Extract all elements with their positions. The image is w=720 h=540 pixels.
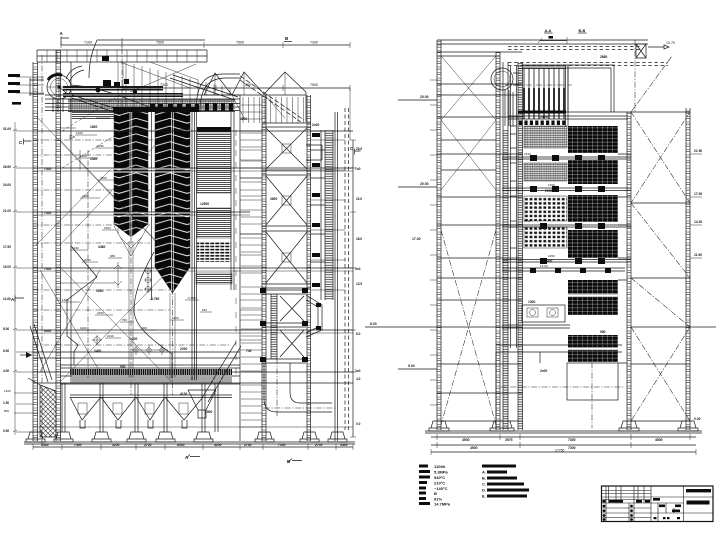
svg-text:7300: 7300: [160, 83, 168, 87]
svg-text:B: B: [434, 491, 437, 496]
svg-text:0.0: 0.0: [356, 422, 361, 426]
svg-text:17.00: 17.00: [694, 192, 702, 196]
svg-text:540°C: 540°C: [434, 475, 445, 480]
svg-text:2150: 2150: [524, 152, 531, 156]
svg-text:6300: 6300: [177, 443, 185, 447]
svg-text:17750: 17750: [555, 449, 565, 453]
svg-text:11.50: 11.50: [694, 253, 702, 257]
svg-text:1.50: 1.50: [3, 401, 9, 405]
svg-text:1200: 1200: [76, 131, 83, 135]
svg-text:28.0: 28.0: [356, 147, 362, 151]
svg-text:8.0: 8.0: [356, 332, 361, 336]
svg-text:5.3MPa: 5.3MPa: [434, 470, 449, 475]
svg-text:3x0: 3x0: [355, 369, 361, 373]
svg-text:1400: 1400: [545, 259, 553, 263]
svg-text:1500: 1500: [104, 226, 111, 230]
svg-text:A-A: A-A: [545, 29, 552, 33]
svg-text:1480: 1480: [62, 298, 69, 302]
svg-text:1250: 1250: [548, 254, 555, 258]
svg-text:5.00: 5.00: [408, 364, 415, 368]
svg-text:D.: D.: [482, 488, 486, 493]
svg-text:2x00: 2x00: [540, 369, 548, 373]
svg-text:17.00: 17.00: [412, 237, 421, 241]
svg-text:B-B: B-B: [579, 29, 586, 33]
svg-text:20.00: 20.00: [420, 95, 429, 99]
svg-text:24.00: 24.00: [3, 183, 11, 187]
svg-text:2130: 2130: [575, 225, 583, 229]
svg-text:-3.780: -3.780: [187, 296, 196, 300]
svg-text:210°C: 210°C: [434, 481, 445, 486]
svg-text:2740: 2740: [244, 443, 252, 447]
svg-text:2240: 2240: [107, 334, 114, 338]
svg-text:0.00: 0.00: [694, 417, 701, 421]
svg-text:20.00: 20.00: [420, 182, 429, 186]
svg-text:26.60: 26.60: [3, 165, 11, 169]
svg-text:3400: 3400: [94, 349, 102, 353]
svg-text:4200: 4200: [214, 443, 222, 447]
svg-text:18.0: 18.0: [356, 237, 362, 241]
svg-text:7300: 7300: [44, 211, 52, 215]
svg-text:7300: 7300: [568, 438, 576, 442]
svg-text:2000: 2000: [84, 258, 91, 262]
svg-text:7100: 7100: [84, 41, 92, 45]
svg-text:31.00: 31.00: [3, 127, 11, 131]
svg-text:6000: 6000: [44, 329, 52, 333]
svg-text:4500: 4500: [462, 438, 470, 442]
svg-text:760: 760: [122, 318, 127, 322]
svg-text:2150: 2150: [545, 189, 553, 193]
svg-text:3400: 3400: [340, 443, 348, 447]
svg-text:2200: 2200: [180, 347, 188, 351]
svg-text:7000: 7000: [44, 267, 52, 271]
svg-text:13.5: 13.5: [356, 282, 362, 286]
svg-text:14.20: 14.20: [694, 220, 702, 224]
svg-text:E.: E.: [482, 494, 486, 499]
svg-text:1250: 1250: [172, 316, 179, 320]
svg-text:1400: 1400: [80, 326, 87, 330]
svg-text:7300: 7300: [568, 446, 576, 450]
svg-text:2250: 2250: [97, 311, 104, 315]
svg-text:4.0: 4.0: [356, 377, 361, 381]
svg-text:14.7MPa: 14.7MPa: [434, 502, 451, 507]
svg-text:1800: 1800: [90, 125, 98, 129]
svg-text:980: 980: [110, 254, 115, 258]
svg-text:1500: 1500: [205, 410, 213, 414]
svg-text:7300: 7300: [44, 167, 52, 171]
svg-text:1240: 1240: [96, 289, 104, 293]
svg-text:7x0: 7x0: [355, 167, 361, 171]
svg-text:7400: 7400: [74, 443, 82, 447]
svg-text:2700: 2700: [315, 443, 323, 447]
svg-text:24000: 24000: [540, 115, 549, 119]
svg-text:2700: 2700: [144, 443, 152, 447]
svg-text:22.0: 22.0: [356, 197, 362, 201]
svg-text:A.: A.: [482, 470, 486, 475]
svg-text:3480: 3480: [98, 245, 106, 249]
svg-text:-3.780: -3.780: [150, 297, 160, 301]
svg-text:4500: 4500: [655, 438, 663, 442]
svg-text:640: 640: [202, 308, 207, 312]
svg-text:740: 740: [246, 349, 252, 353]
svg-text:1200: 1200: [4, 389, 11, 393]
svg-text:4130: 4130: [180, 392, 188, 396]
svg-text:3600: 3600: [270, 197, 278, 201]
svg-text:17.50: 17.50: [3, 245, 11, 249]
svg-text:15.00: 15.00: [3, 265, 11, 269]
svg-text:13.00: 13.00: [540, 264, 548, 268]
svg-text:8.00: 8.00: [370, 322, 377, 326]
svg-text:B.: B.: [482, 476, 486, 481]
svg-text:1300: 1300: [528, 300, 536, 304]
svg-text:21.50: 21.50: [694, 149, 702, 153]
svg-text:1200: 1200: [130, 337, 138, 341]
svg-text:4.00: 4.00: [3, 369, 9, 373]
svg-text:7500: 7500: [310, 83, 318, 87]
svg-text:1240: 1240: [72, 246, 79, 250]
svg-text:7500: 7500: [236, 41, 244, 45]
svg-text:0.00: 0.00: [3, 429, 9, 433]
svg-text:900: 900: [120, 365, 126, 369]
svg-text:7500: 7500: [156, 41, 164, 45]
svg-text:3400: 3400: [41, 443, 49, 447]
svg-text:2340: 2340: [90, 157, 98, 161]
svg-text:7540: 7540: [278, 443, 286, 447]
svg-text:1400: 1400: [548, 183, 555, 187]
svg-text:110t/h: 110t/h: [434, 464, 446, 469]
svg-text:980: 980: [600, 330, 606, 334]
svg-text:3975: 3975: [505, 438, 513, 442]
svg-text:21000: 21000: [180, 127, 189, 131]
svg-text:7300: 7300: [310, 41, 318, 45]
svg-text:21.00: 21.00: [3, 209, 11, 213]
svg-text:6.00: 6.00: [3, 349, 9, 353]
svg-text:7500: 7500: [243, 83, 251, 87]
svg-text:5x0: 5x0: [355, 267, 361, 271]
svg-text:2x00: 2x00: [312, 123, 320, 127]
svg-text:8.00: 8.00: [3, 327, 9, 331]
svg-text:2680: 2680: [600, 55, 608, 59]
svg-text:13.70: 13.70: [666, 41, 675, 45]
svg-text:11.60: 11.60: [3, 297, 11, 301]
svg-text:900: 900: [142, 326, 147, 330]
svg-text:C.: C.: [482, 482, 486, 487]
svg-text:2150: 2150: [575, 155, 583, 159]
svg-text:800: 800: [4, 409, 9, 413]
svg-text:2500: 2500: [240, 117, 248, 121]
svg-text:4500: 4500: [470, 446, 478, 450]
svg-text:3200: 3200: [112, 443, 120, 447]
svg-text:12500: 12500: [200, 202, 209, 206]
